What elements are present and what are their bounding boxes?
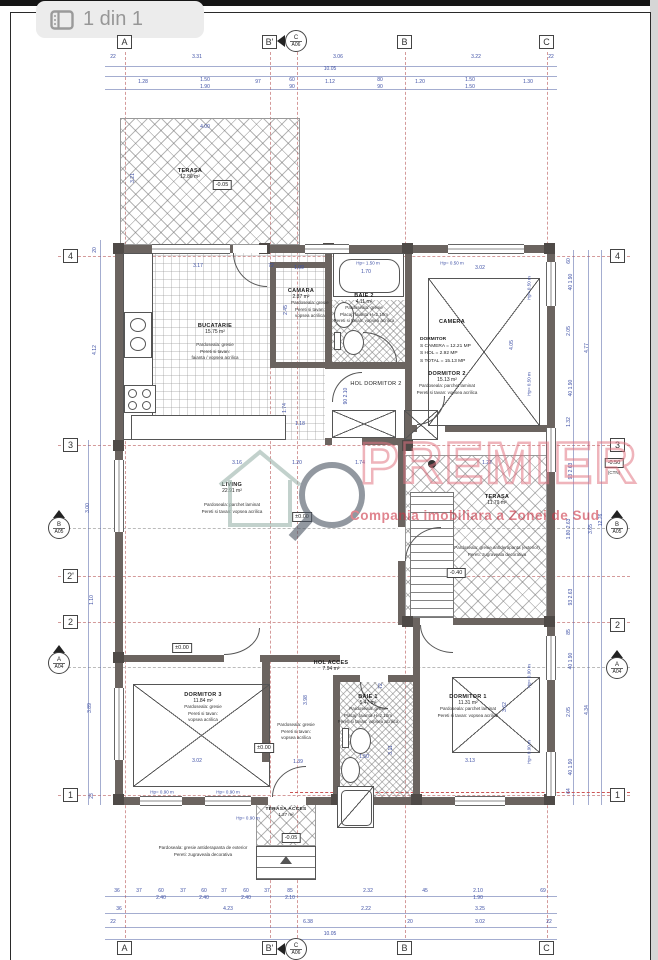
door-opening — [224, 655, 260, 662]
parapet-height-label: Hp= 0.50 m — [527, 276, 532, 299]
parapet-height-label: Hp= 1.50 m — [356, 261, 379, 266]
axis-2-right: 2 — [610, 618, 625, 632]
section-marker-a-left: AA04 — [48, 652, 70, 674]
dim-label: 2.22 — [361, 906, 371, 912]
dim-label: 40 1.90 — [568, 380, 574, 397]
dim-label: 3.02 — [475, 919, 485, 925]
dim-label: 37 — [264, 888, 270, 894]
kitchen-counter — [131, 415, 286, 440]
floor-plan-viewer: 1 din 1 — [0, 0, 658, 960]
dim-label: 40 1.90 — [568, 653, 574, 670]
dim-label: 10.05 — [324, 66, 337, 72]
room-label-baie1: BAIE 15.47 m² Pardoseala: gresiePlacaj: … — [338, 694, 399, 726]
dim-label: 45 — [422, 888, 428, 894]
dim-label: 3.06 — [333, 54, 343, 60]
dim-label: 3.16 — [232, 460, 242, 466]
wall — [270, 362, 330, 368]
parapet-height-label: Hp= 0.50 m — [527, 372, 532, 395]
dim-label: 1.39 — [293, 759, 303, 765]
dim-label: 6.38 — [303, 919, 313, 925]
column-marker — [428, 460, 436, 468]
room-label-hol-dormitor2: HOL DORMITOR 2 — [350, 381, 401, 387]
window — [205, 796, 251, 806]
dim-label: 2.45 — [283, 305, 289, 315]
toilet-tank — [334, 332, 341, 350]
level-marker-living: ±0.00 — [292, 512, 312, 522]
stove — [124, 385, 156, 413]
dim-line — [105, 913, 557, 914]
dim-label: 12.76 — [598, 514, 604, 527]
dim-label: 1.20 — [292, 460, 302, 466]
dim-label: 1.30 — [523, 79, 533, 85]
dim-label: 2.32 — [363, 888, 373, 894]
axis-b-bottom: B — [397, 941, 412, 955]
column — [402, 616, 413, 627]
room-label-terasa-nw: TERASA12.86 m² — [178, 168, 202, 180]
parapet-height-label: Hp= 0.90 m — [150, 790, 173, 795]
window — [152, 244, 230, 254]
dim-label: 97 — [255, 79, 261, 85]
dim-label: 93 2.63 — [568, 589, 574, 606]
shower — [337, 786, 374, 828]
dim-label: 1.12 — [325, 79, 335, 85]
dim-label: 1.74 — [355, 460, 365, 466]
parapet-height-label: Hp= 0.90 m — [236, 816, 259, 821]
dim-label: 20 — [92, 247, 98, 253]
dim-label: 22 — [110, 919, 116, 925]
wall — [413, 618, 420, 805]
dim-label: 1.50 — [465, 84, 475, 90]
dim-label: 1.50 — [465, 77, 475, 83]
window — [546, 636, 556, 680]
door-arc — [272, 766, 306, 797]
level-marker-dormitor3: ±0.00 — [172, 643, 192, 653]
toilet-tank — [342, 728, 349, 748]
dim-label: 1.50 — [359, 754, 369, 760]
door-opening — [332, 438, 362, 445]
dim-label: 93 2.63 — [568, 463, 574, 480]
dim-label: 36 — [116, 906, 122, 912]
dim-label: 2.05 — [566, 707, 572, 717]
dim-label: 3.21 — [130, 173, 136, 183]
parapet-height-label: Hp= 0.90 m — [527, 740, 532, 763]
column — [402, 440, 413, 451]
dim-label: 4.00 — [200, 124, 210, 130]
dim-label: 40 1.90 — [568, 274, 574, 291]
door-opening — [268, 797, 306, 805]
dim-label: 60 — [158, 888, 164, 894]
dim-label: 4.77 — [584, 343, 590, 353]
room-finish-terasa-e: Pardoseala: gresie antiderapanta (exteri… — [454, 545, 540, 558]
column — [113, 440, 124, 451]
dim-label: 2.40 — [156, 895, 166, 901]
section-marker-arrow — [277, 943, 285, 955]
section-marker-a-right: AA04 — [606, 657, 628, 679]
dim-label: 69 — [540, 888, 546, 894]
dim-label: 37 — [180, 888, 186, 894]
axis-b1-bottom: B' — [262, 941, 277, 955]
window — [546, 428, 556, 472]
dim-line — [105, 896, 557, 897]
dim-label: 3.11 — [388, 745, 394, 754]
room-label-camera: CAMERA — [439, 319, 465, 325]
dim-label: 3.98 — [303, 695, 309, 705]
dim-line — [105, 927, 557, 928]
window — [546, 262, 556, 306]
dim-label: 1.90 — [200, 84, 210, 90]
dim-label: 1.10 — [89, 595, 95, 605]
level-marker-hol: ±0.00 — [254, 743, 274, 753]
room-label-dormitor2: DORMITOR 215.13 m² Pardoseala: parchet l… — [417, 371, 478, 396]
axis-1-right: 1 — [610, 788, 625, 802]
dim-label: 72 — [378, 683, 384, 689]
dim-label: 60 — [289, 77, 295, 83]
wardrobe — [404, 410, 438, 440]
door-opening — [233, 245, 267, 253]
dim-label: 3.13 — [465, 758, 475, 764]
dim-label: 4.23 — [223, 906, 233, 912]
toilet — [350, 728, 371, 754]
window — [140, 796, 182, 806]
dim-label: 4.05 — [509, 340, 515, 350]
floor-plan: A B' B C CA06 A B' B C CA06 4 3 2' 2 1 B… — [0, 0, 658, 960]
axis-b1-top: B' — [262, 35, 277, 49]
dim-label: 20 — [407, 919, 413, 925]
axis-2p-left: 2' — [63, 569, 78, 583]
toilet — [343, 330, 364, 355]
dim-label: 3.62 — [502, 702, 508, 712]
wall — [325, 362, 412, 369]
dim-label: 3.65 — [588, 524, 594, 534]
section-marker-c-top: CA06 — [285, 30, 307, 52]
door-arc — [224, 628, 260, 655]
window — [114, 688, 124, 760]
dim-label: 80 — [377, 77, 383, 83]
level-marker-ctn: -0.50 — [605, 458, 624, 468]
parapet-height-label: Hp= 0.90 m — [216, 790, 239, 795]
dim-label: 1.18 — [295, 421, 305, 427]
column — [544, 243, 555, 254]
column — [544, 616, 555, 627]
window — [455, 796, 505, 806]
dim-label: 90 — [289, 84, 295, 90]
dim-line — [88, 440, 89, 805]
dim-label: 1.28 — [138, 79, 148, 85]
room-label-dormitor1: DORMITOR 111.31 m² Pardoseala: parchet l… — [438, 694, 499, 719]
room-label-camara: CAMARA2.87 m² Pardoseala: gresie Pereti … — [288, 288, 314, 320]
dim-label: 85 — [566, 629, 572, 635]
dim-label: 2.40 — [199, 895, 209, 901]
dim-label: 3.22 — [471, 54, 481, 60]
room-label-bucatarie: BUCATARIE15.75 m² Pardoseala: gresiePere… — [191, 323, 238, 362]
door-opening — [398, 527, 405, 561]
level-marker-terrace-e: -0.40 — [447, 568, 466, 578]
door-arc — [420, 625, 453, 653]
axis-4-right: 4 — [610, 249, 625, 263]
dim-label: 1.32 — [566, 417, 572, 427]
axis-b-top: B — [397, 35, 412, 49]
axis-a-bottom: A — [117, 941, 132, 955]
column — [113, 652, 124, 663]
dim-label: 2.05 — [566, 326, 572, 336]
dim-label: 4.34 — [584, 705, 590, 715]
section-marker-arrow — [277, 35, 285, 47]
dim-label: 3.89 — [87, 703, 93, 713]
level-marker-terrace-nw: -0.05 — [213, 180, 232, 190]
dim-label: 22 — [546, 919, 552, 925]
window — [546, 752, 556, 796]
dim-label: 40 1.90 — [568, 759, 574, 776]
dim-label: 1.50 — [200, 77, 210, 83]
section-marker-b-right: BA05 — [606, 517, 628, 539]
level-marker-ctn-sub: (CTN) — [608, 470, 620, 475]
dim-label: 3.02 — [192, 758, 202, 764]
dim-line — [573, 250, 574, 805]
dim-label: 3.00 — [85, 503, 91, 513]
column — [411, 794, 422, 805]
room-label-living: LIVING22.91 m² Pardoseala: parchet lamin… — [202, 482, 263, 515]
grid-line-3 — [58, 445, 630, 446]
dim-label: 90 2.10 — [343, 388, 349, 405]
dim-label: 60 — [201, 888, 207, 894]
axis-c-top: C — [539, 35, 554, 49]
axis-1-left: 1 — [63, 788, 78, 802]
axis-4-left: 4 — [63, 249, 78, 263]
section-marker-c-bottom: CA06 — [285, 938, 307, 960]
dim-label: 1.80 2.63 — [566, 519, 572, 540]
dim-label: 2.10 — [285, 895, 295, 901]
dim-label: 60 — [566, 258, 572, 264]
door-opening — [360, 675, 388, 682]
column — [113, 794, 124, 805]
wall — [270, 262, 276, 368]
axis-2-left: 2 — [63, 615, 78, 629]
dim-line — [105, 89, 557, 90]
dim-label: 3.17 — [193, 263, 203, 269]
room-label-terasa-acces: TERASA ACCES 1.27 m² — [265, 807, 306, 817]
dim-label: 3.25 — [475, 906, 485, 912]
dim-label: 23 — [89, 793, 95, 799]
dim-label: 1.20 — [415, 79, 425, 85]
parapet-height-label: Hp= 0.90 m — [527, 664, 532, 687]
room-label-baie2: BAIE 24.11 m² Pardoseala: gresiePlacaj: … — [334, 293, 395, 325]
level-marker-terrace-entry: -0.05 — [282, 833, 301, 843]
axis-a-top: A — [117, 35, 132, 49]
dim-line — [100, 240, 101, 805]
dim-label: 3.02 — [475, 265, 485, 271]
kitchen-sink — [124, 312, 152, 358]
axis-3-left: 3 — [63, 438, 78, 452]
axis-c-bottom: C — [539, 941, 554, 955]
dim-label: 37 — [221, 888, 227, 894]
window — [114, 460, 124, 532]
dim-label: 1.90 — [473, 895, 483, 901]
dim-label: 1.09 — [294, 265, 304, 271]
terrace-nw-floor — [120, 118, 300, 245]
dim-label: 72 — [268, 263, 274, 269]
wall — [547, 245, 555, 805]
section-marker-b-left: BA05 — [48, 517, 70, 539]
dim-label: 3.31 — [192, 54, 202, 60]
dim-label: 10.05 — [324, 931, 337, 937]
dim-label: 2.10 — [473, 888, 483, 894]
dim-label: 36 — [114, 888, 120, 894]
dim-label: 22 — [548, 54, 554, 60]
dim-line — [105, 76, 557, 77]
parapet-height-label: Hp= 0.50 m — [440, 261, 463, 266]
dim-label: 2.40 — [241, 895, 251, 901]
dim-label: 60 — [243, 888, 249, 894]
dim-line — [105, 939, 557, 940]
axis-3-right: 3 — [610, 438, 625, 452]
dim-label: 85 — [287, 888, 293, 894]
room-label-hol-acces: HOL ACCES7.94 m² — [314, 660, 349, 672]
steps-direction-icon — [280, 856, 292, 864]
dim-label: 4.12 — [92, 345, 98, 355]
dim-label: 1.70 — [361, 269, 371, 275]
dim-line — [601, 250, 602, 805]
exterior-finish-note: Pardoseala: gresie antiderapanta de exte… — [159, 845, 248, 858]
dim-label: 64 — [566, 788, 572, 794]
dim-label: 1.22 — [482, 460, 492, 466]
wardrobe — [332, 410, 396, 438]
dim-label: 90 — [377, 84, 383, 90]
room-label-dormitor3: DORMITOR 311.84 m² Pardoseala: gresiePer… — [184, 692, 222, 724]
door-opening — [420, 618, 453, 625]
window — [448, 244, 524, 254]
dim-label: 1.74 — [282, 403, 288, 413]
dim-label: 37 — [136, 888, 142, 894]
room-label-terasa-e: TERASA11.79 m² — [485, 494, 509, 506]
room-finish-hol-acces: Pardoseala: gresiePereti si tavan:vopsea… — [277, 722, 315, 742]
bath1-sink — [341, 757, 360, 783]
room-calc-camera: DORMITOR S CAMERA = 12.21 MP S HOL = 2.9… — [420, 336, 471, 365]
dim-label: 22 — [110, 54, 116, 60]
